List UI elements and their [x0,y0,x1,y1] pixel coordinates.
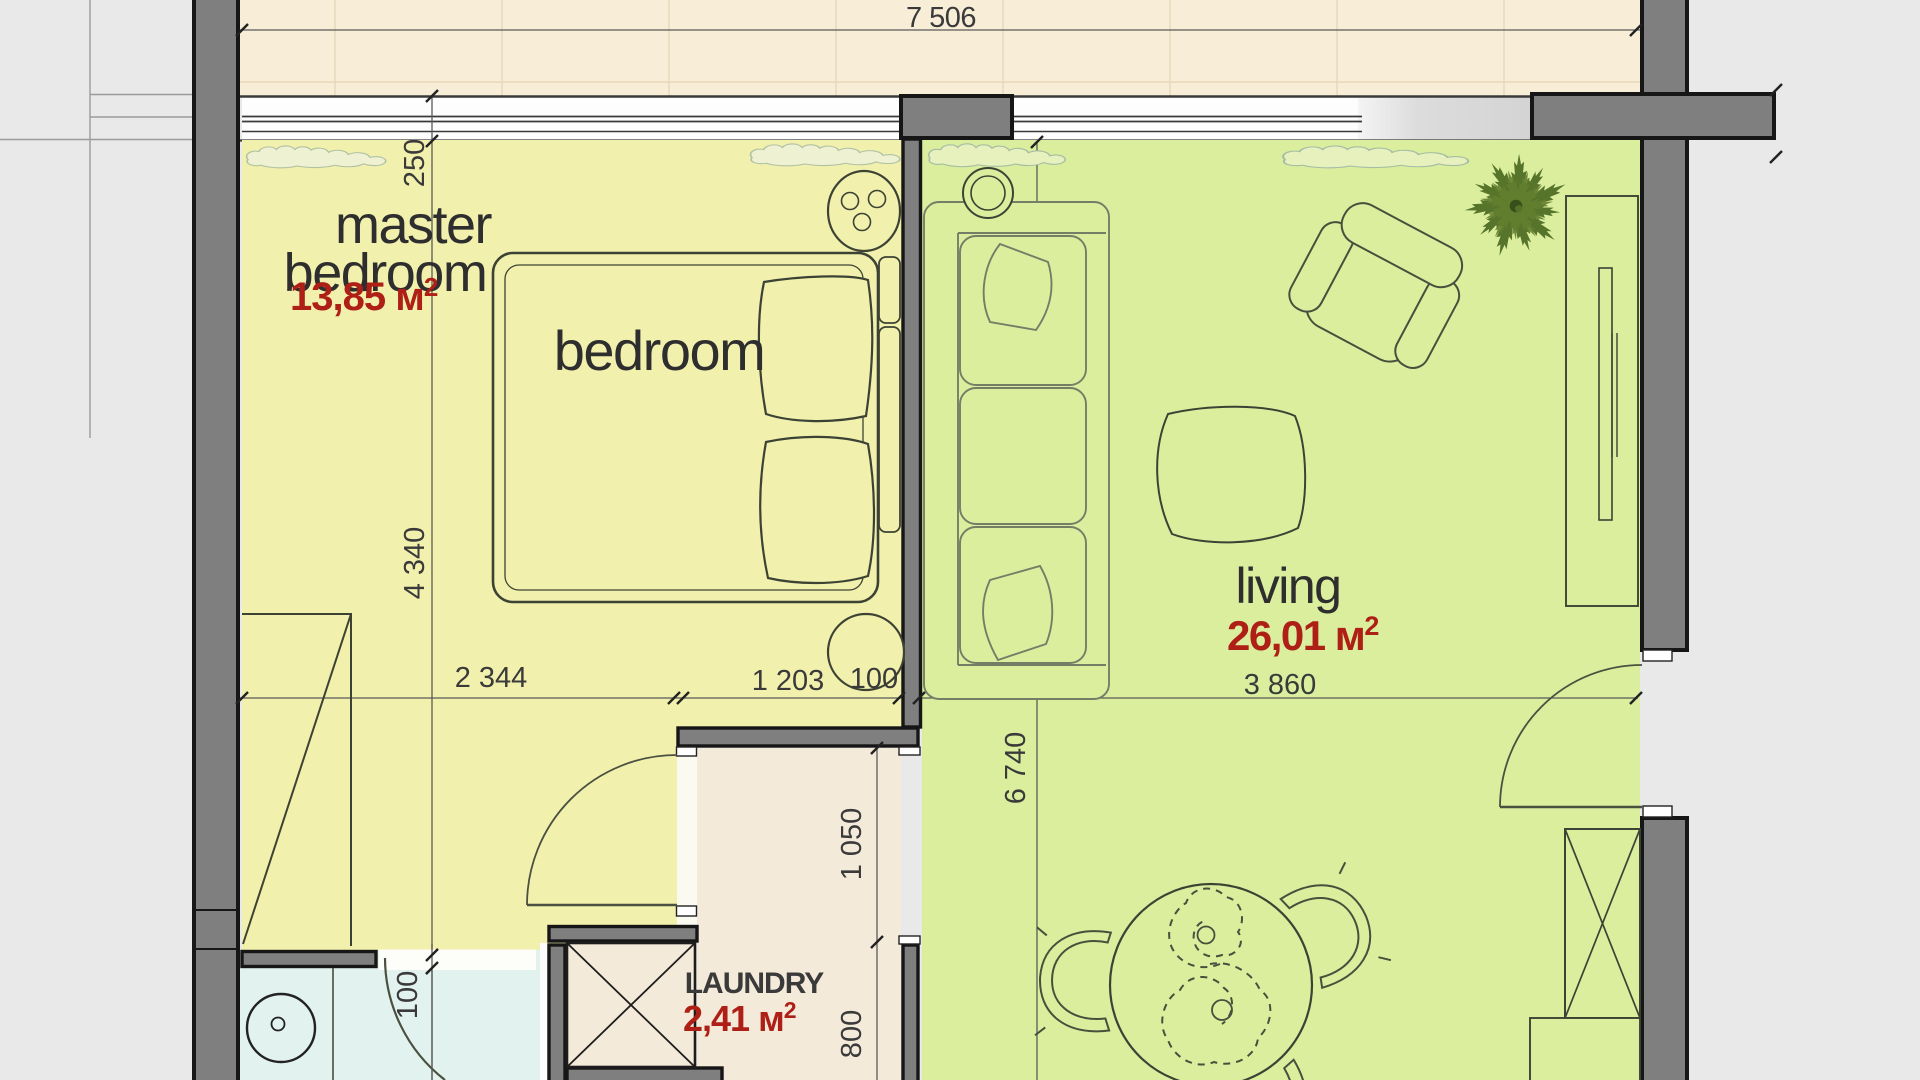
svg-text:2,41 м2: 2,41 м2 [683,997,796,1039]
svg-text:1 050: 1 050 [836,808,868,881]
svg-text:250: 250 [399,139,431,187]
svg-text:LAUNDRY: LAUNDRY [685,967,825,1000]
svg-text:13,85 м2: 13,85 м2 [290,272,438,319]
svg-text:800: 800 [836,1010,868,1058]
svg-text:7 506: 7 506 [906,2,976,34]
svg-text:4 340: 4 340 [399,527,431,600]
svg-text:bedroom: bedroom [554,319,765,382]
svg-text:1 203: 1 203 [752,665,825,697]
svg-text:3 860: 3 860 [1244,669,1317,701]
svg-text:6 740: 6 740 [1000,732,1032,805]
svg-text:2 344: 2 344 [455,662,528,694]
svg-text:living: living [1236,558,1341,614]
svg-text:100: 100 [392,971,424,1019]
svg-text:26,01 м2: 26,01 м2 [1227,611,1378,659]
svg-text:100: 100 [850,663,898,695]
